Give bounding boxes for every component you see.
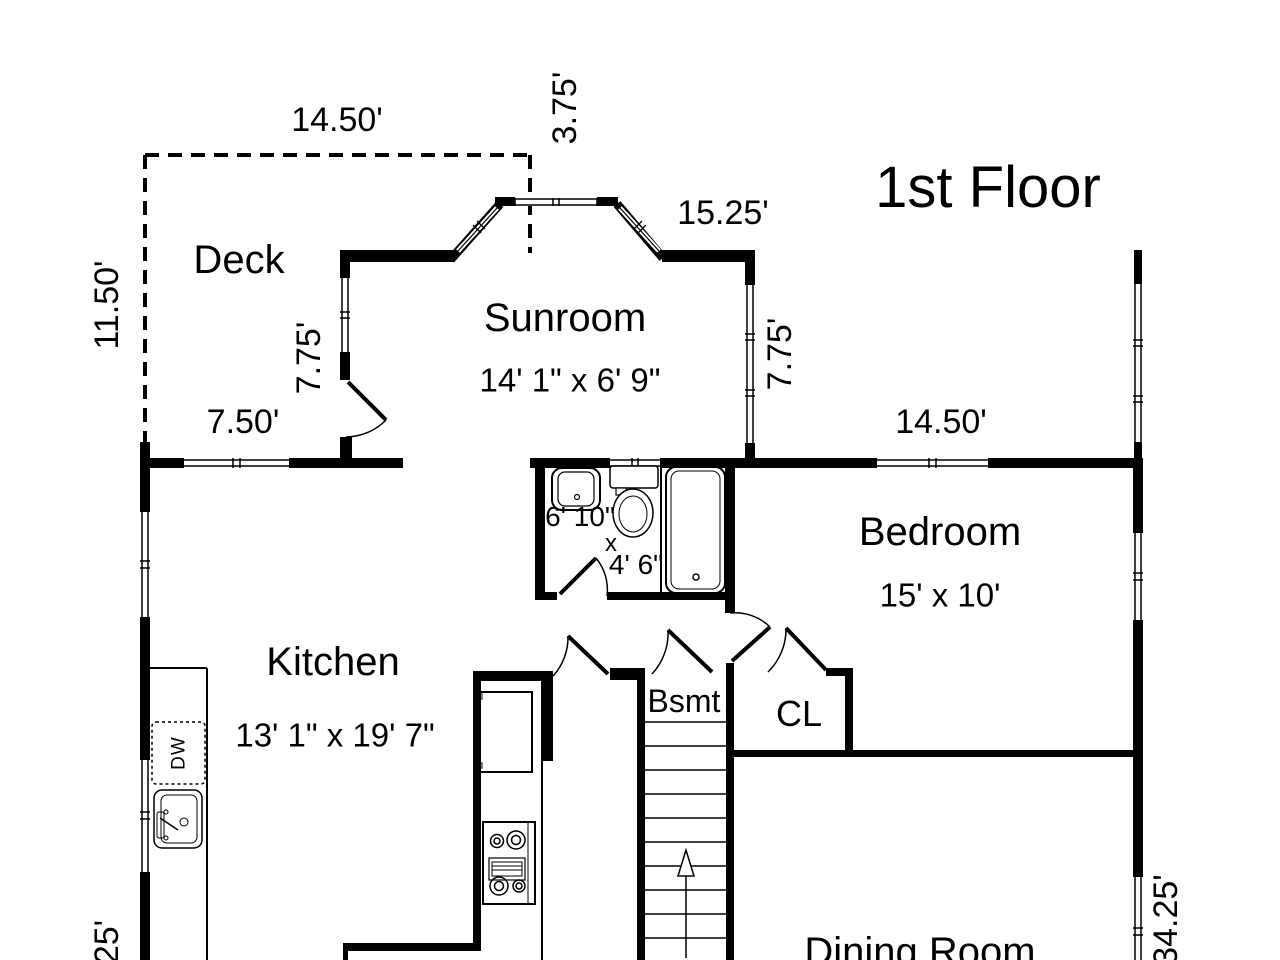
dim-sunroom-left: 7.75' [292, 322, 326, 395]
bathroom-width: 6' 10" [545, 503, 615, 531]
kitchen-sink-icon [154, 790, 202, 848]
dim-right-side: 34.25' [1149, 874, 1183, 960]
window [140, 760, 150, 872]
dim-left-bottom: 25' [90, 920, 124, 960]
window [1133, 877, 1143, 960]
dim-deck-top: 14.50' [291, 103, 383, 137]
stairs-icon [645, 722, 726, 958]
window [877, 458, 988, 468]
up-arrow-icon [678, 850, 694, 958]
room-label-kitchen: Kitchen [266, 642, 399, 682]
deck-outline [145, 155, 530, 458]
window [340, 278, 350, 352]
room-size-sunroom: 14' 1" x 6' 9" [480, 364, 661, 397]
room-label-deck: Deck [193, 240, 284, 280]
toilet-icon [610, 466, 658, 537]
dim-bay-depth: 3.75' [548, 72, 582, 145]
dim-bedroom-top: 14.50' [895, 405, 987, 439]
door-basement [652, 630, 712, 674]
floor-plan: 1st Floor Deck Sunroom 14' 1" x 6' 9" Ki… [0, 0, 1280, 960]
room-label-bedroom: Bedroom [859, 512, 1021, 552]
dim-deck-left: 11.50' [90, 260, 124, 349]
window [745, 285, 755, 443]
bathroom-depth: 4' 6" [609, 551, 663, 579]
bay-window [452, 198, 663, 258]
refrigerator-icon [474, 692, 532, 772]
door-kitchen-hall [553, 636, 608, 676]
door-bathroom [560, 558, 607, 596]
door-bedroom [730, 613, 770, 661]
window [140, 512, 150, 617]
dim-deck-bottom: 7.50' [207, 405, 280, 439]
room-size-bedroom: 15' x 10' [880, 579, 1001, 612]
dim-sunroom-right: 7.75' [763, 318, 797, 391]
window [184, 458, 289, 468]
window [1133, 284, 1143, 442]
room-label-basement-stairs: Bsmt [648, 685, 721, 717]
dim-sunroom-width: 15.25' [677, 196, 769, 230]
room-size-kitchen: 13' 1" x 19' 7" [235, 719, 434, 752]
stove-icon [483, 822, 535, 904]
window [1133, 533, 1143, 620]
door-sunroom [346, 382, 386, 437]
room-label-sunroom: Sunroom [484, 298, 646, 338]
kitchen-counter [150, 668, 207, 960]
dishwasher-label: DW [170, 736, 189, 770]
bathtub-icon [666, 467, 725, 593]
floor-plan-drawing [0, 0, 1280, 960]
page-title: 1st Floor [875, 159, 1101, 217]
room-label-closet: CL [776, 696, 822, 732]
door-closet [768, 628, 826, 672]
kitchen-fixtures [150, 668, 542, 960]
bay-top-window [515, 198, 597, 206]
room-label-dining-room: Dining Room [804, 932, 1035, 960]
